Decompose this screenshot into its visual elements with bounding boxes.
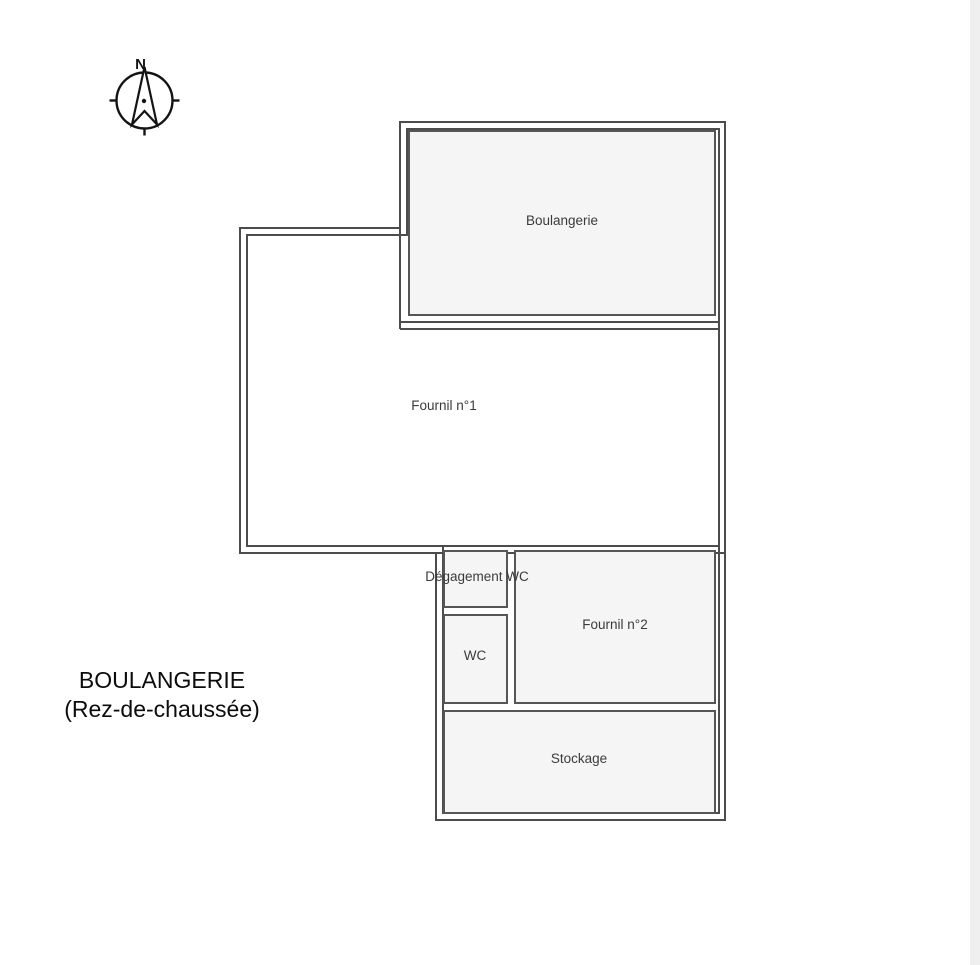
compass-needle [132, 67, 157, 125]
room-label-wc: WC [464, 648, 487, 663]
page-title-line1: BOULANGERIE [79, 667, 245, 693]
compass-center-dot [142, 99, 146, 103]
page-title: BOULANGERIE (Rez-de-chaussée) [64, 667, 260, 722]
compass-icon: N [110, 56, 180, 136]
room-label-stockage: Stockage [551, 751, 607, 766]
floor-plan-page: N Boulangerie Fournil [0, 0, 980, 965]
page-title-line2: (Rez-de-chaussée) [64, 696, 260, 722]
room-label-fournil-2: Fournil n°2 [582, 617, 647, 632]
right-edge-strip [970, 0, 980, 965]
room-label-degagement-wc: Dégagement WC [425, 569, 529, 584]
room-label-boulangerie: Boulangerie [526, 213, 598, 228]
rooms [409, 131, 715, 813]
room-label-fournil-1: Fournil n°1 [411, 398, 476, 413]
floor-plan-drawing: N Boulangerie Fournil [0, 0, 980, 965]
compass-north-label: N [135, 56, 146, 73]
